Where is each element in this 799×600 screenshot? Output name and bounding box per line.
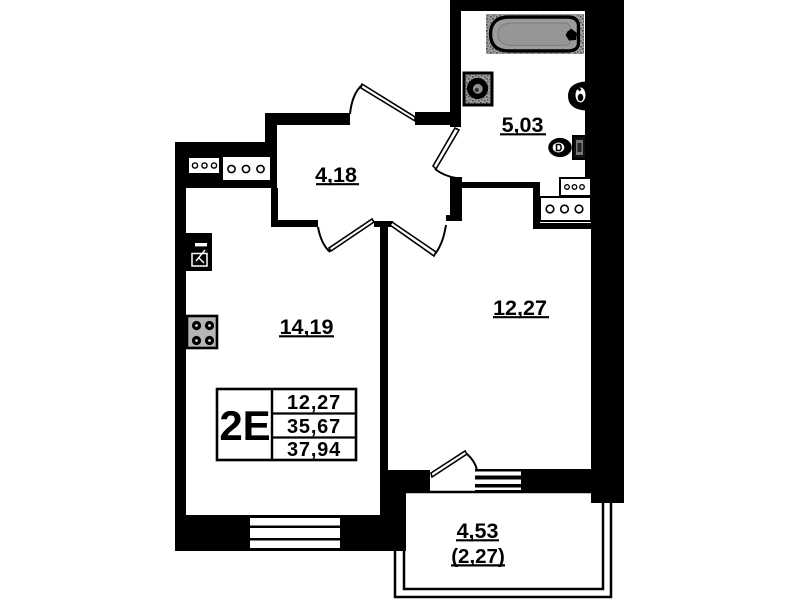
svg-text:37,94: 37,94 <box>287 439 341 461</box>
svg-text:12,27: 12,27 <box>287 392 341 414</box>
svg-text:35,67: 35,67 <box>287 416 341 438</box>
svg-text:2E: 2E <box>219 402 270 449</box>
